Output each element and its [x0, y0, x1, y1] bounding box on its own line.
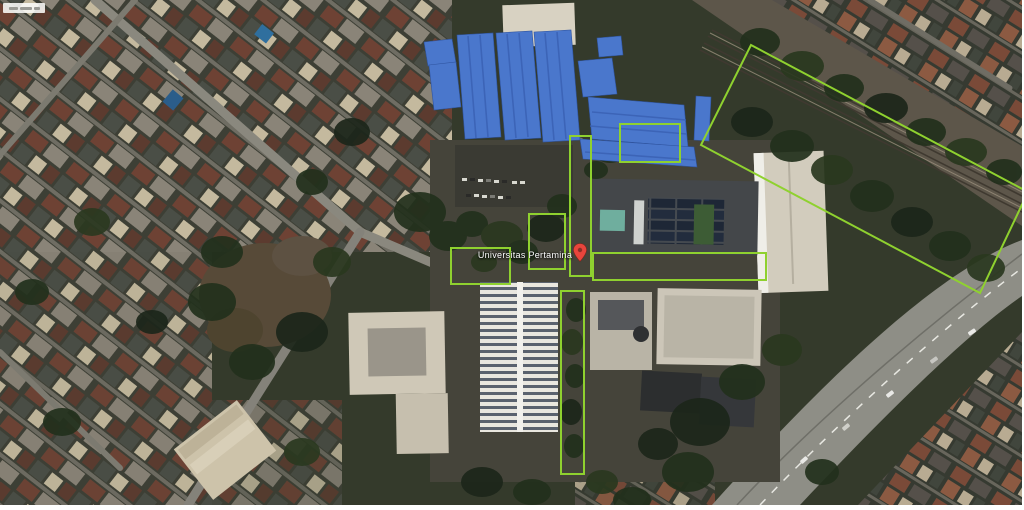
annotation-box-5: [593, 253, 766, 280]
annotation-polygon-railway: [701, 45, 1022, 293]
map-viewport: Universitas Pertamina: [0, 0, 1024, 510]
annotation-box-6: [561, 291, 584, 474]
imagery-watermark: [3, 3, 45, 13]
place-label: Universitas Pertamina: [470, 250, 580, 260]
annotation-box-1: [620, 124, 680, 162]
annotation-box-3: [529, 214, 565, 269]
